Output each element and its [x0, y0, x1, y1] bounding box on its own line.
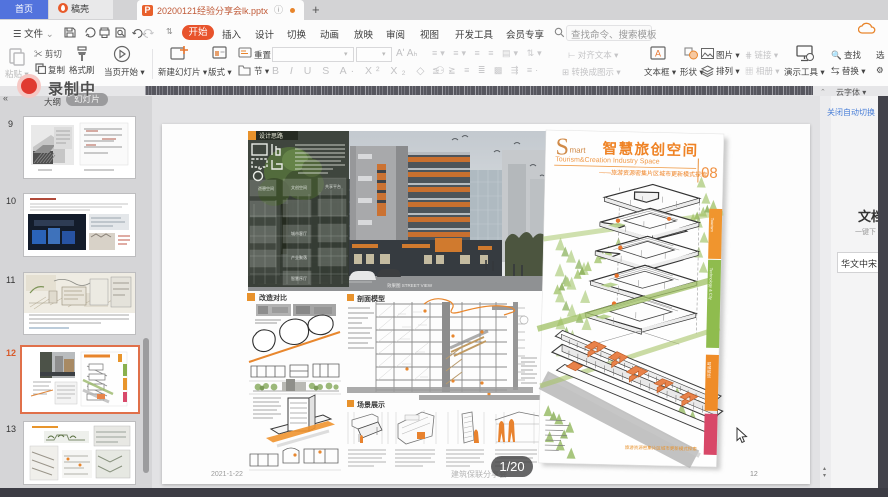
svg-text:智慧旅创: 智慧旅创 — [706, 362, 712, 378]
svg-text:改造对比: 改造对比 — [259, 293, 287, 302]
svg-text:剖面模型: 剖面模型 — [357, 294, 385, 303]
svg-text:mart: mart — [569, 146, 586, 155]
svg-text:文创空间: 文创空间 — [291, 184, 307, 190]
svg-text:Technology & City: Technology & City — [708, 268, 714, 300]
svg-text:场景展示: 场景展示 — [357, 400, 385, 409]
svg-text:效果图 STREET VIEW: 效果图 STREET VIEW — [387, 282, 433, 289]
svg-text:城市客厅: 城市客厅 — [291, 230, 307, 236]
svg-text:A: A — [655, 49, 661, 59]
svg-text:2021-1-22: 2021-1-22 — [211, 471, 243, 478]
svg-text:智慧旅创空间: 智慧旅创空间 — [602, 139, 698, 159]
svg-text:共享平台: 共享平台 — [325, 183, 341, 189]
svg-text:12: 12 — [750, 471, 758, 478]
svg-text:产业聚落: 产业聚落 — [291, 254, 307, 260]
svg-text:智慧序厅: 智慧序厅 — [291, 275, 307, 281]
svg-text:Tourism: Tourism — [710, 218, 715, 233]
svg-text:遊憩空间: 遊憩空间 — [258, 185, 274, 191]
svg-text:设计思路: 设计思路 — [259, 132, 283, 140]
svg-text:08: 08 — [701, 165, 718, 182]
